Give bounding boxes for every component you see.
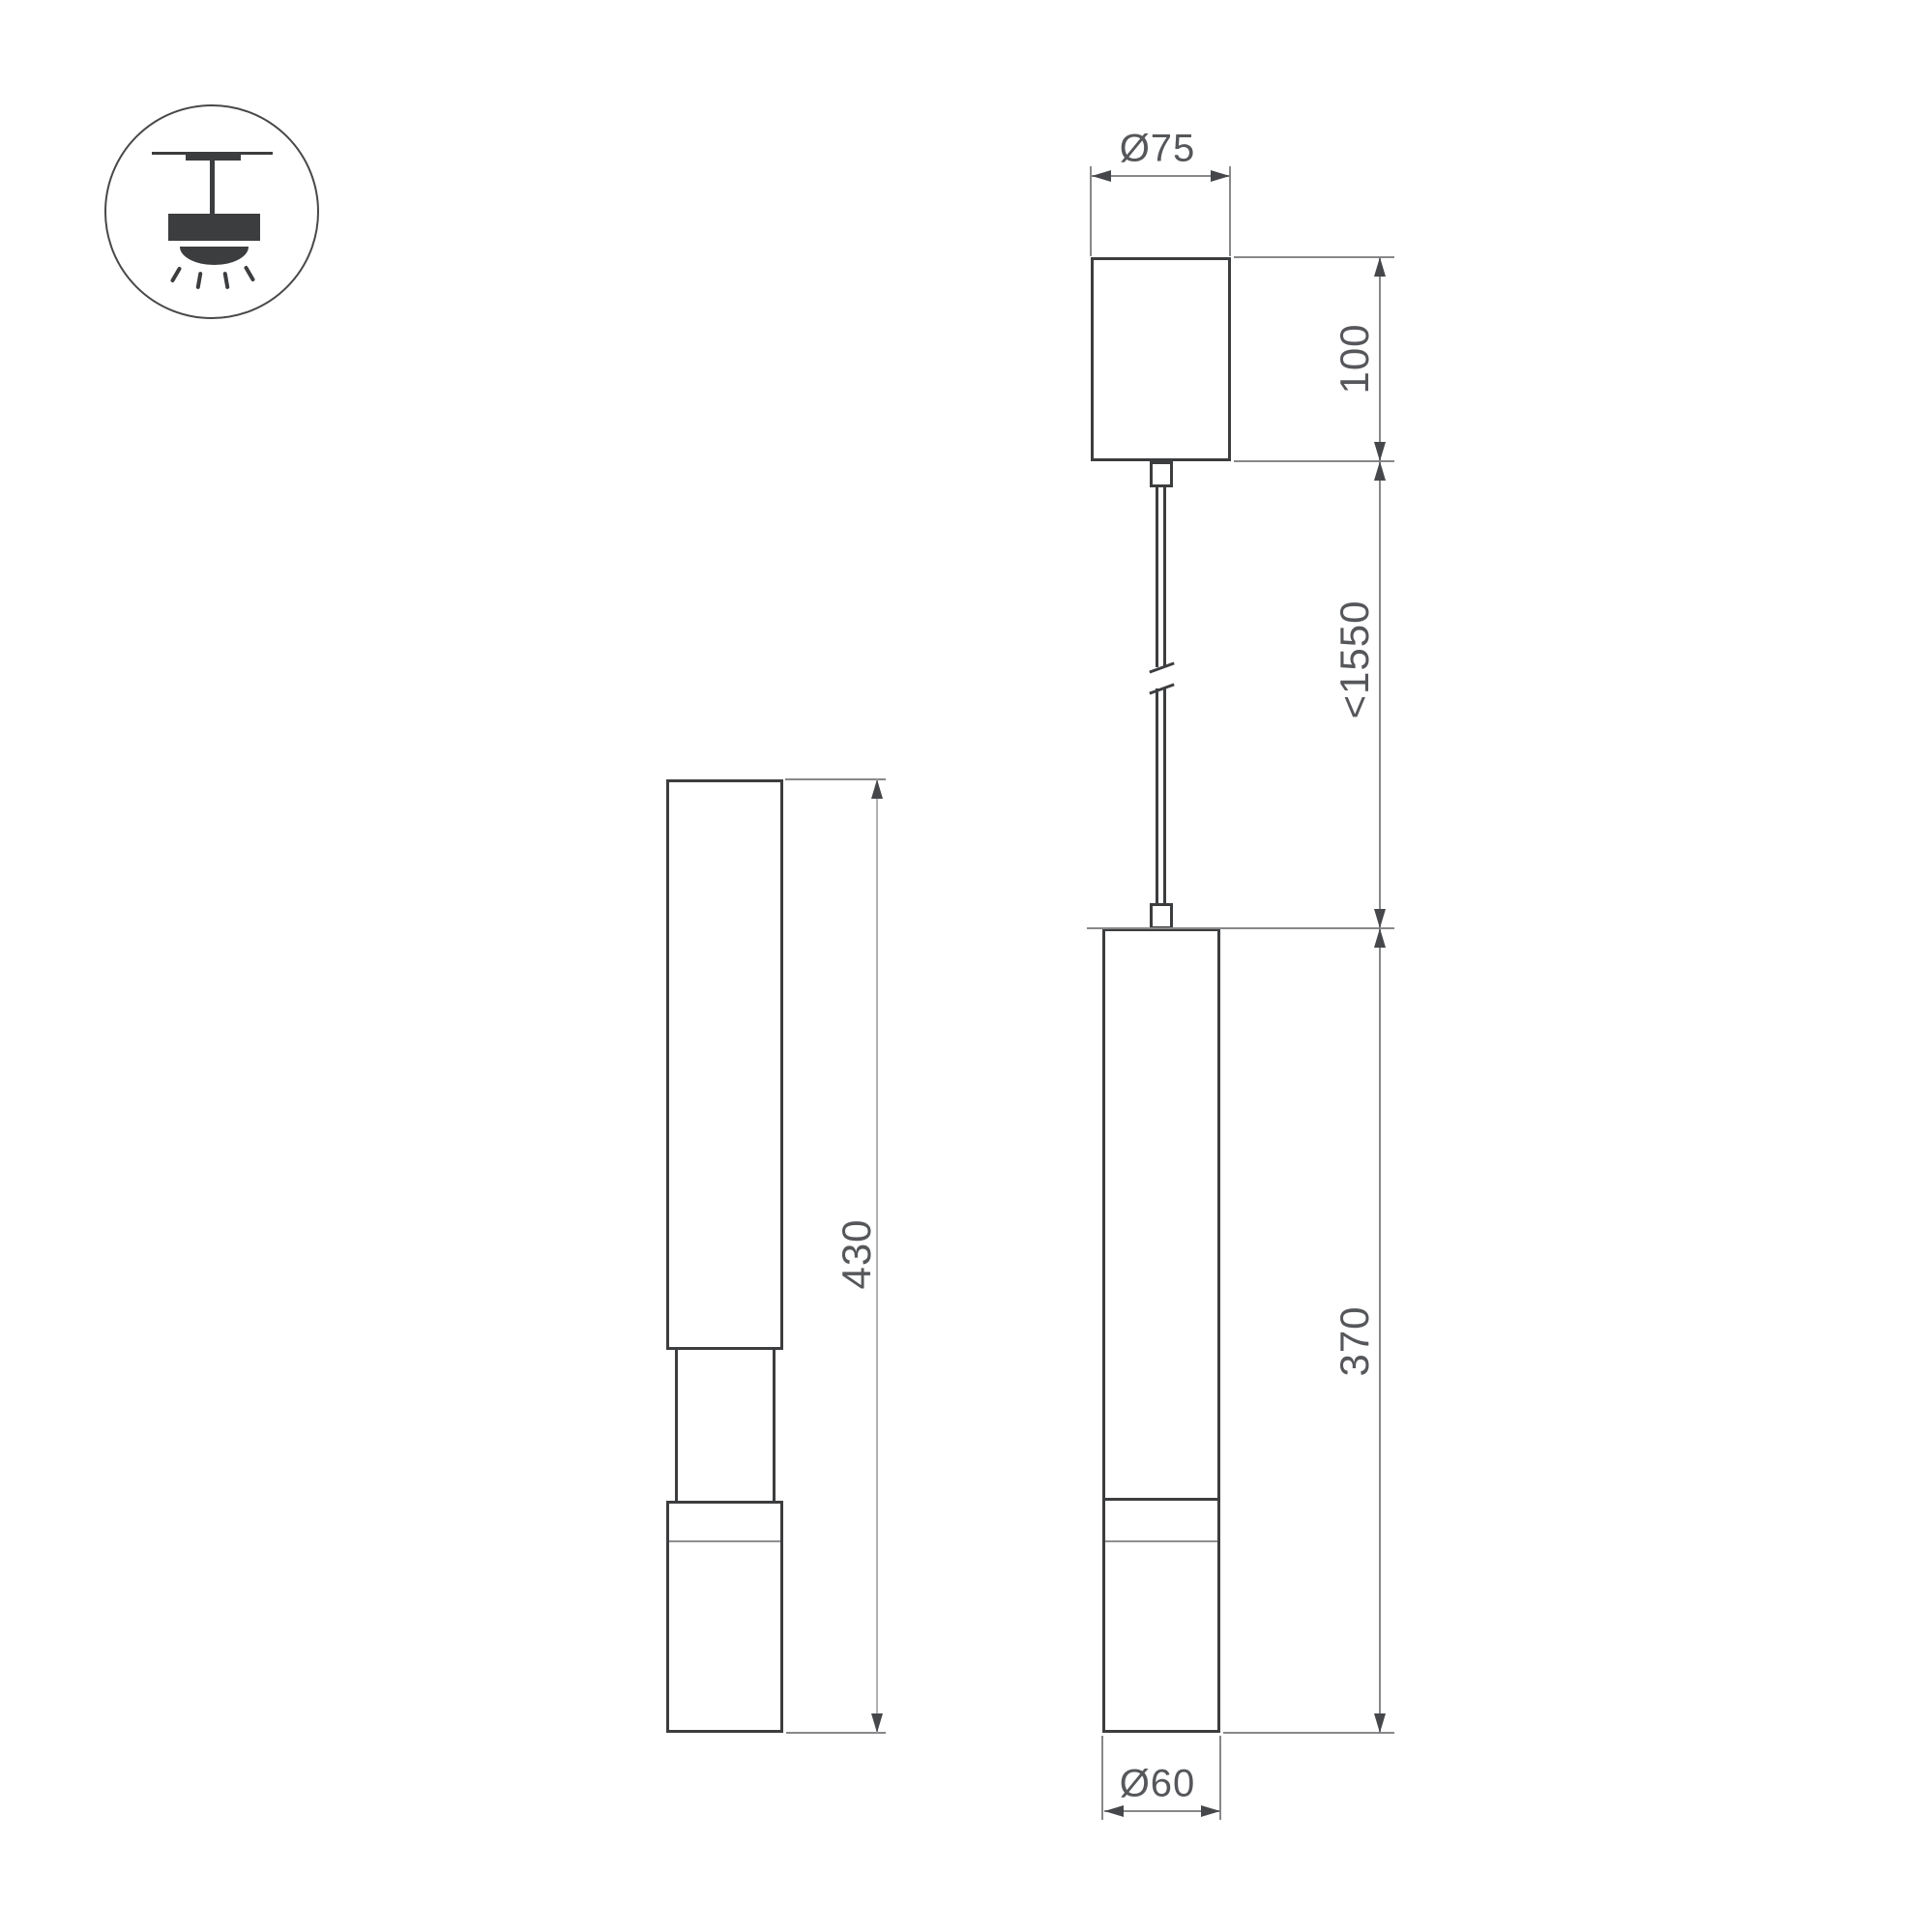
suspension-cable (1156, 688, 1158, 903)
arrowhead (1092, 170, 1111, 182)
side-view-lens-joint-line (669, 1540, 780, 1542)
icon-stem (210, 161, 215, 215)
side-view-body-tube (666, 779, 783, 1350)
dimension-line-d75 (1092, 175, 1230, 177)
dimension-label-430: 430 (834, 1218, 880, 1289)
arrowhead (1201, 1805, 1220, 1817)
dimension-label-100: 100 (1332, 323, 1378, 394)
front-view-lamp-tube (1102, 928, 1220, 1733)
front-view-lens-line (1105, 1540, 1217, 1542)
extension-line (1234, 460, 1394, 462)
front-view-canopy (1091, 257, 1231, 461)
extension-line (1101, 1736, 1103, 1820)
dimension-label-1550: <1550 (1332, 600, 1378, 719)
arrowhead (1104, 1805, 1124, 1817)
cable-break-mark (1149, 683, 1174, 694)
arrowhead (1374, 442, 1386, 461)
extension-line (1223, 1732, 1394, 1734)
technical-drawing-canvas: 430 Ø75 100 <1550 370 Ø60 (0, 0, 1932, 1932)
arrowhead (871, 1713, 883, 1733)
dimension-label-370: 370 (1332, 1305, 1378, 1376)
cable-break-mark (1149, 661, 1174, 673)
front-view-top-connector (1150, 903, 1173, 929)
arrowhead (1374, 461, 1386, 481)
suspension-cable (1156, 486, 1158, 667)
arrowhead (1374, 909, 1386, 928)
arrowhead (1211, 170, 1230, 182)
arrowhead (871, 779, 883, 799)
extension-line (1234, 256, 1394, 258)
front-view-cable-gland (1150, 461, 1173, 487)
suspension-cable (1163, 486, 1166, 667)
suspension-cable (1163, 688, 1166, 903)
arrowhead (1374, 1713, 1386, 1733)
arrowhead (1374, 257, 1386, 277)
side-view-neck-section (675, 1350, 776, 1501)
dimension-label-d75: Ø75 (1120, 128, 1196, 171)
arrowhead (1374, 928, 1386, 948)
dimension-label-d60: Ø60 (1120, 1763, 1196, 1806)
ceiling-pendant-icon (0, 0, 425, 425)
front-view-base-joint-line (1104, 1498, 1218, 1501)
extension-line (1087, 927, 1394, 929)
icon-lamp-body (168, 214, 260, 241)
side-view-base-section (666, 1501, 783, 1733)
